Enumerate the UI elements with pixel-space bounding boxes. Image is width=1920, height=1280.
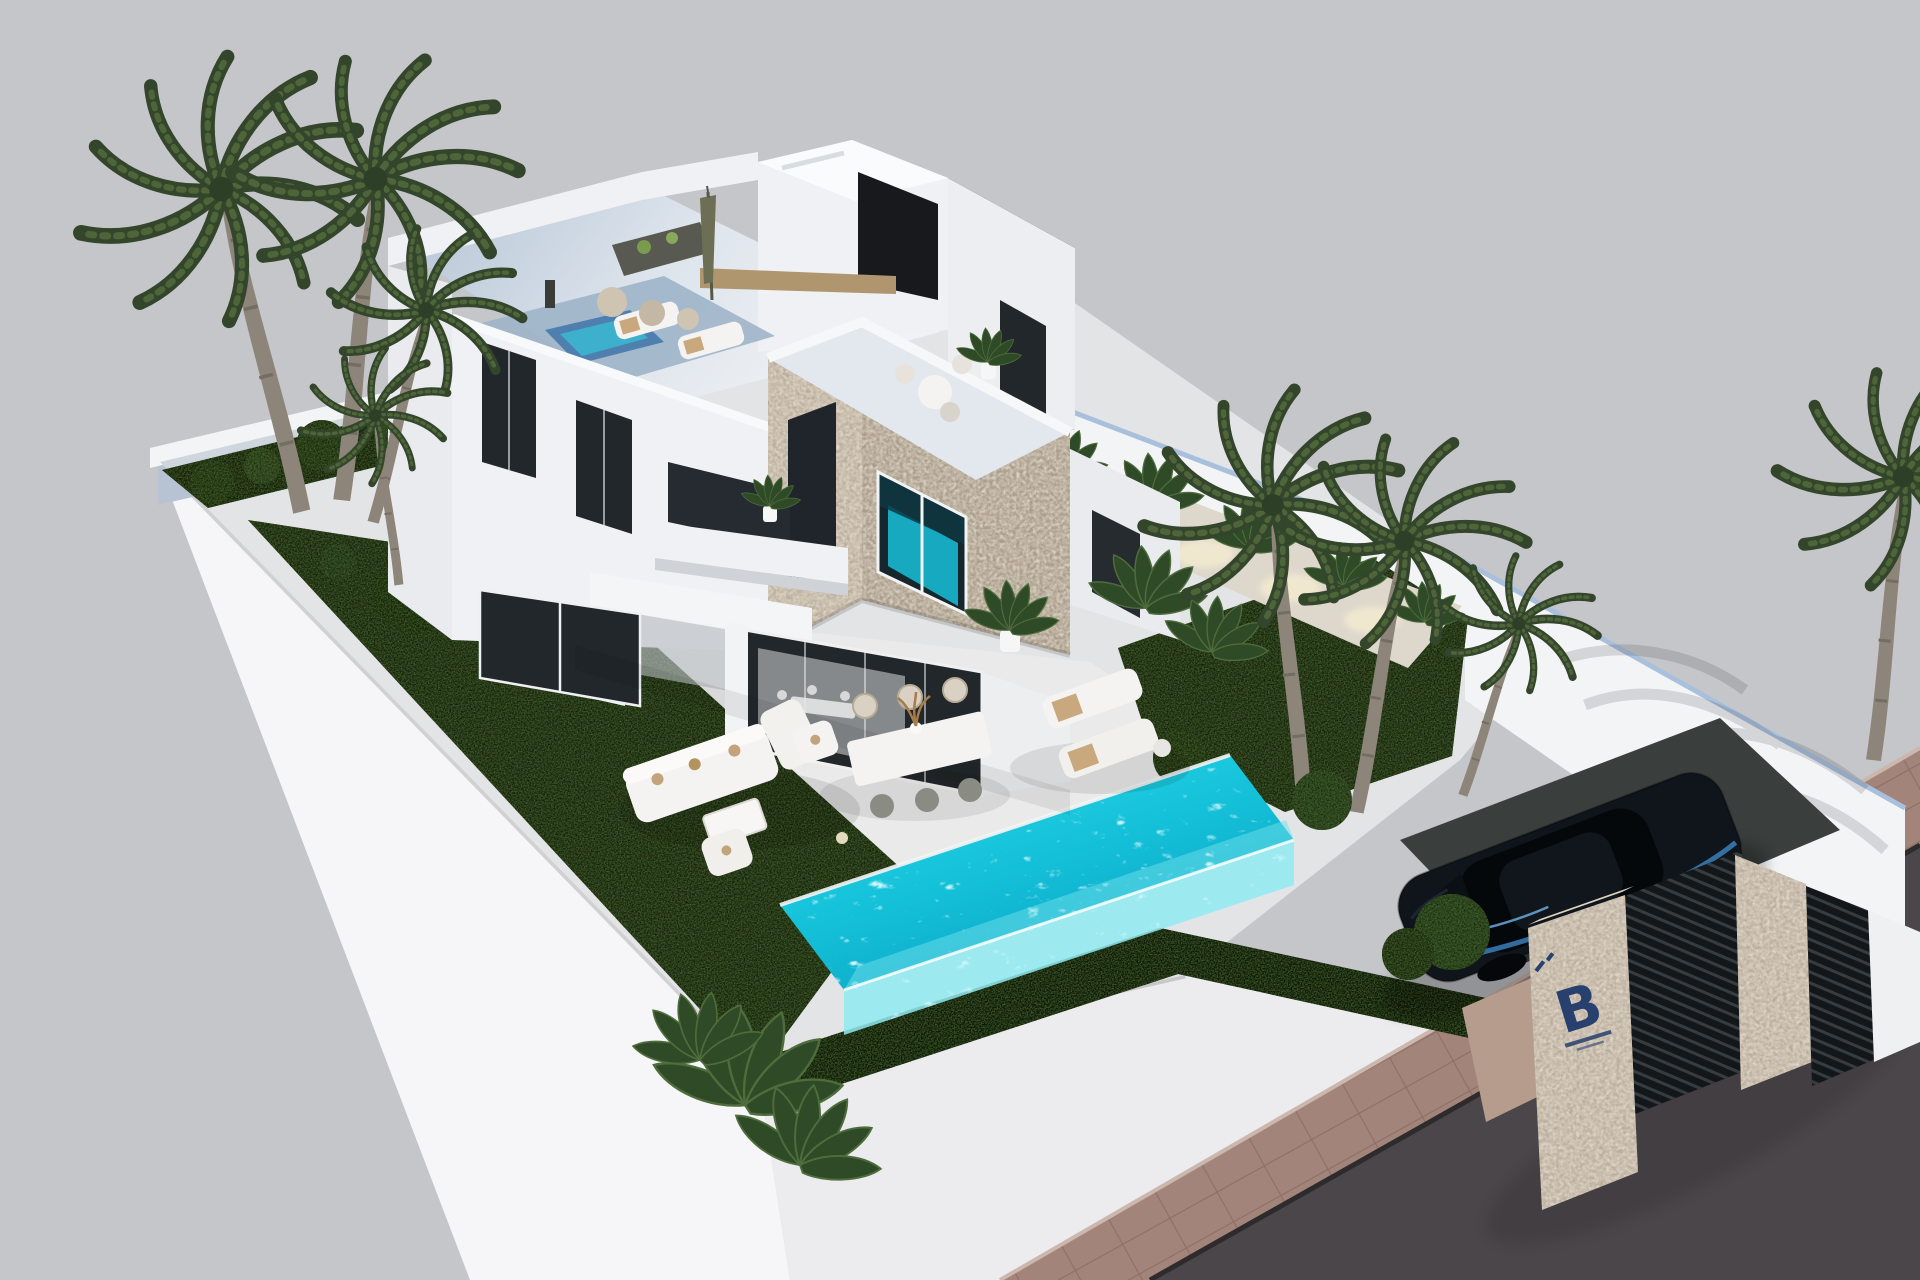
dining-chair (898, 685, 922, 709)
entrance-bush-2 (1382, 928, 1434, 980)
cube-roof-chair (895, 364, 915, 384)
palm-base-bush (1292, 770, 1352, 830)
roof-pouf3 (677, 308, 699, 330)
garden-spotlight (836, 832, 848, 844)
roof-pouf2 (639, 300, 665, 326)
dining-chair (943, 678, 967, 702)
logo-pillar-face (1528, 895, 1638, 1210)
ground-pier (725, 622, 748, 745)
dining-chair (958, 778, 982, 802)
entrance-pillar-right (1735, 855, 1812, 1090)
roof-pouf (597, 287, 627, 317)
dining-chair (853, 694, 877, 718)
dining-chair (870, 794, 894, 818)
lounger-side-table (1153, 739, 1171, 757)
cube-roof-chair3 (940, 402, 960, 422)
roof-sofa-cushion2 (666, 232, 678, 244)
dining-chair (915, 788, 939, 812)
roof-sofa-cushion (637, 240, 651, 254)
roof-lantern (545, 280, 555, 308)
wall-end-sliver (1868, 910, 1920, 1062)
render-viewport: B (0, 0, 1920, 1280)
gate-panel-2-slats (1806, 886, 1878, 1086)
logo-pillar: B (1528, 886, 1638, 1210)
